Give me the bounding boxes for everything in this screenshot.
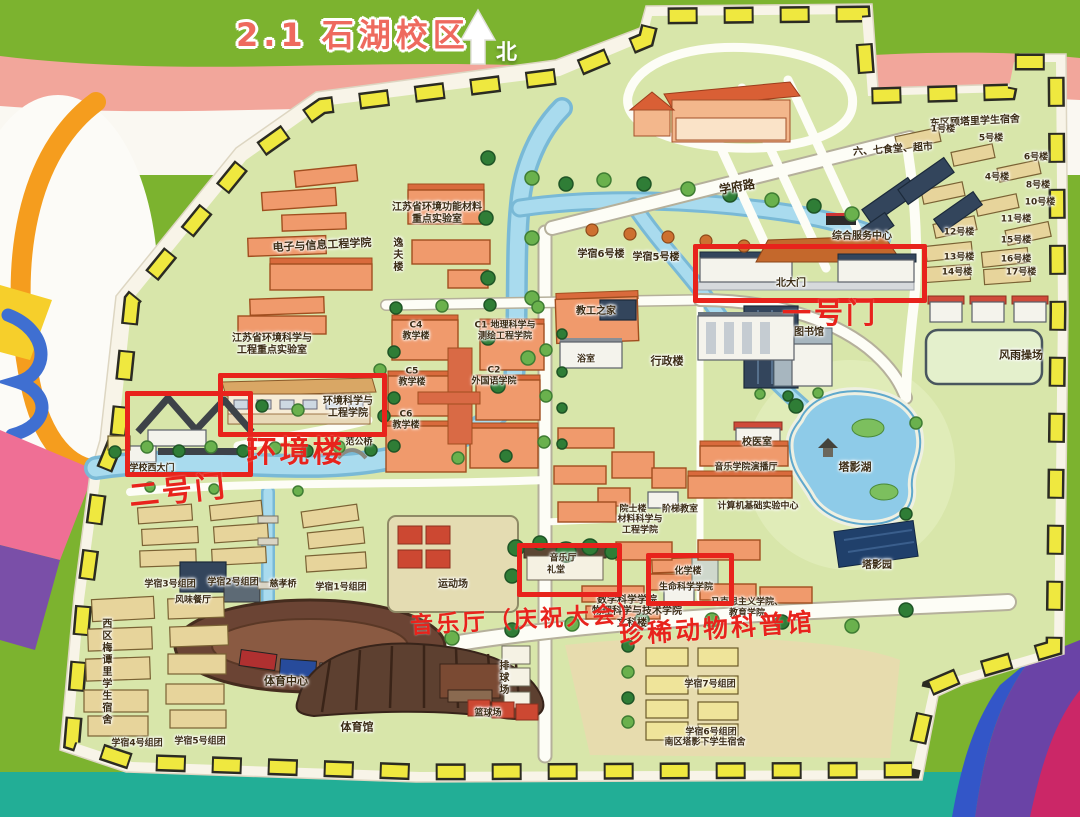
- highlight-box-music: [517, 543, 622, 597]
- north-label: 北: [496, 36, 517, 66]
- northeast-kiosks: [928, 296, 1048, 322]
- covered-playground: [926, 330, 1042, 384]
- administration-building: [698, 312, 794, 360]
- annotation-env: 环境楼: [247, 427, 346, 471]
- annotation-gate1: 一号门: [782, 290, 878, 332]
- section-number: 2.1: [236, 16, 308, 54]
- campus-name: 石湖校区: [322, 16, 470, 54]
- highlight-box-animal: [646, 553, 734, 606]
- page-title: 2.1石湖校区: [236, 10, 470, 56]
- campus-map: .b1{fill:#f09a6c;stroke:#a14e1f;stroke-w…: [0, 0, 1080, 817]
- sports-field: [388, 516, 518, 612]
